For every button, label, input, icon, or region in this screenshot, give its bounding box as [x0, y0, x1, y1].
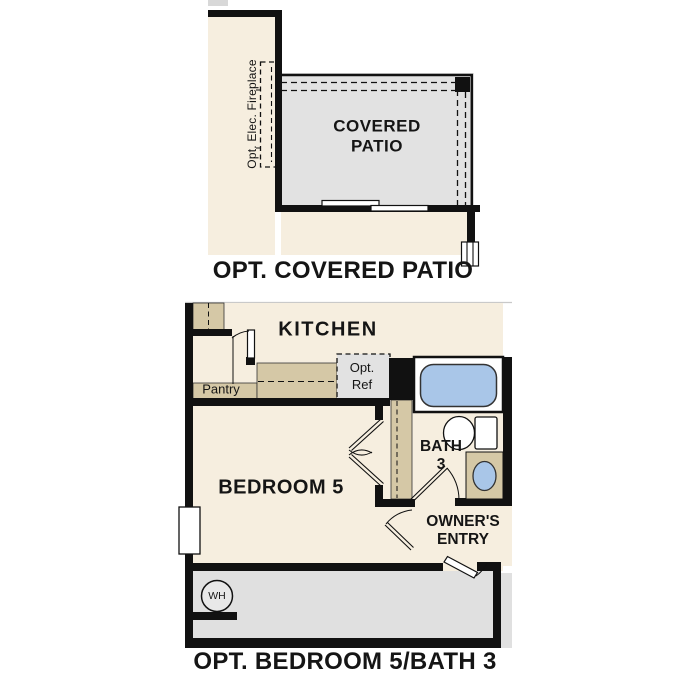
bedroom5-room-label: BEDROOM 5: [218, 477, 344, 500]
owners-entry-label-line1: OWNER'S: [426, 513, 499, 531]
opt-fireplace-label: Opt. Elec. Fireplace: [246, 59, 260, 168]
opt-ref-label-line2: Ref: [350, 377, 375, 394]
kitchen-room-label: KITCHEN: [278, 319, 377, 342]
opt-ref-label-line1: Opt.: [350, 360, 375, 377]
pantry-label: Pantry: [202, 383, 240, 398]
patio-room-label: COVERED PATIO: [333, 116, 421, 155]
owners-entry-label: OWNER'S ENTRY: [426, 513, 499, 549]
bath3-room-label-line2: 3: [420, 456, 462, 474]
floorplan-page: COVERED PATIO Opt. Elec. Fireplace OPT. …: [0, 0, 687, 687]
water-heater-label: WH: [208, 590, 226, 602]
bath3-room-label: BATH 3: [420, 438, 462, 474]
bedroom5-bath3-caption: OPT. BEDROOM 5/BATH 3: [193, 648, 496, 676]
opt-ref-label: Opt. Ref: [350, 360, 375, 394]
covered-patio-caption: OPT. COVERED PATIO: [213, 257, 474, 285]
owners-entry-label-line2: ENTRY: [426, 531, 499, 549]
bath3-room-label-line1: BATH: [420, 438, 462, 456]
patio-room-label-line1: COVERED: [333, 116, 421, 136]
labels-layer: COVERED PATIO Opt. Elec. Fireplace OPT. …: [0, 0, 687, 687]
patio-room-label-line2: PATIO: [333, 136, 421, 156]
